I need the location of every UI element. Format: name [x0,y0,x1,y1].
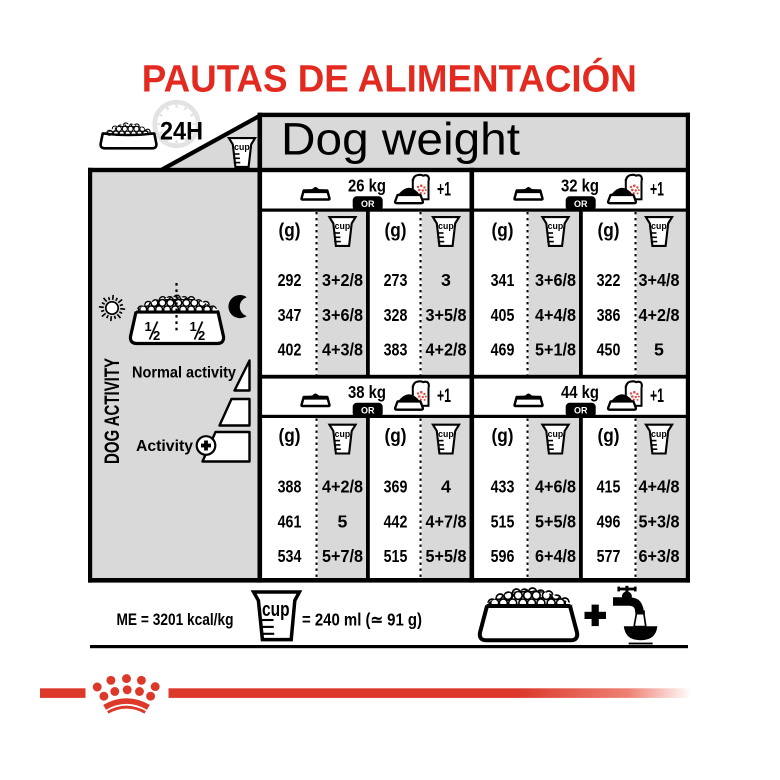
svg-text:5+3/8: 5+3/8 [639,512,680,532]
svg-text:515: 515 [491,512,515,532]
svg-text:+1: +1 [437,179,451,200]
svg-text:3+2/8: 3+2/8 [322,270,363,290]
svg-text:(g): (g) [492,220,514,242]
svg-text:(g): (g) [598,425,620,447]
svg-text:(g): (g) [385,425,407,447]
svg-text:(g): (g) [492,425,514,447]
svg-text:534: 534 [278,546,302,566]
svg-text:4+2/8: 4+2/8 [426,340,467,360]
svg-text:386: 386 [597,305,621,325]
svg-text:450: 450 [597,340,621,360]
svg-text:ME = 3201 kcal/kg: ME = 3201 kcal/kg [117,610,234,629]
svg-text:PAUTAS DE ALIMENTACIÓN: PAUTAS DE ALIMENTACIÓN [142,57,637,101]
svg-text:433: 433 [491,477,515,497]
svg-text:5+1/8: 5+1/8 [535,340,576,360]
svg-text:32 kg: 32 kg [561,176,599,196]
svg-text:273: 273 [384,270,408,290]
svg-text:3+6/8: 3+6/8 [535,270,576,290]
svg-text:Dog weight: Dog weight [281,114,520,165]
svg-text:369: 369 [384,477,408,497]
svg-text:1: 1 [190,319,197,334]
svg-text:402: 402 [278,340,302,360]
svg-text:(g): (g) [279,425,301,447]
svg-text:(g): (g) [279,220,301,242]
svg-text:4+7/8: 4+7/8 [426,512,467,532]
svg-text:3+4/8: 3+4/8 [639,270,680,290]
svg-text:44 kg: 44 kg [561,382,599,402]
svg-text:(g): (g) [598,220,620,242]
svg-text:+1: +1 [650,179,664,200]
svg-text:515: 515 [384,546,408,566]
svg-text:Activity: Activity [136,438,193,455]
svg-text:(g): (g) [385,220,407,242]
svg-text:4: 4 [441,477,451,497]
svg-text:405: 405 [491,305,515,325]
svg-text:+1: +1 [437,386,451,407]
svg-text:5+5/8: 5+5/8 [426,546,467,566]
svg-text:4+3/8: 4+3/8 [322,340,363,360]
svg-text:4+4/8: 4+4/8 [639,477,680,497]
svg-text:= 240 ml (≃ 91 g): = 240 ml (≃ 91 g) [302,609,422,629]
svg-text:5+7/8: 5+7/8 [322,546,363,566]
svg-text:+1: +1 [650,386,664,407]
svg-text:292: 292 [278,270,302,290]
svg-text:596: 596 [491,546,515,566]
svg-text:328: 328 [384,305,408,325]
svg-text:4+2/8: 4+2/8 [322,477,363,497]
svg-text:38 kg: 38 kg [348,382,386,402]
svg-text:3+5/8: 3+5/8 [426,305,467,325]
svg-text:Normal activity: Normal activity [132,365,236,382]
svg-text:6+4/8: 6+4/8 [535,546,576,566]
svg-text:1: 1 [145,319,152,334]
svg-text:3: 3 [441,270,451,290]
svg-text:5: 5 [338,512,348,532]
svg-text:347: 347 [278,305,302,325]
svg-text:26 kg: 26 kg [348,176,386,196]
svg-text:341: 341 [491,270,515,290]
svg-text:6+3/8: 6+3/8 [639,546,680,566]
svg-text:3+6/8: 3+6/8 [322,305,363,325]
svg-text:496: 496 [597,512,621,532]
svg-text:577: 577 [597,546,621,566]
svg-text:cup: cup [262,599,290,621]
svg-text:415: 415 [597,477,621,497]
svg-text:4+4/8: 4+4/8 [535,305,576,325]
svg-text:469: 469 [491,340,515,360]
svg-text:442: 442 [384,512,408,532]
svg-text:24H: 24H [160,119,203,146]
svg-text:461: 461 [278,512,302,532]
svg-text:DOG ACTIVITY: DOG ACTIVITY [100,358,124,464]
svg-text:4+2/8: 4+2/8 [639,305,680,325]
svg-text:322: 322 [597,270,621,290]
svg-text:388: 388 [278,477,302,497]
svg-text:4+6/8: 4+6/8 [535,477,576,497]
svg-text:5: 5 [654,340,664,360]
svg-text:5+5/8: 5+5/8 [535,512,576,532]
svg-text:383: 383 [384,340,408,360]
